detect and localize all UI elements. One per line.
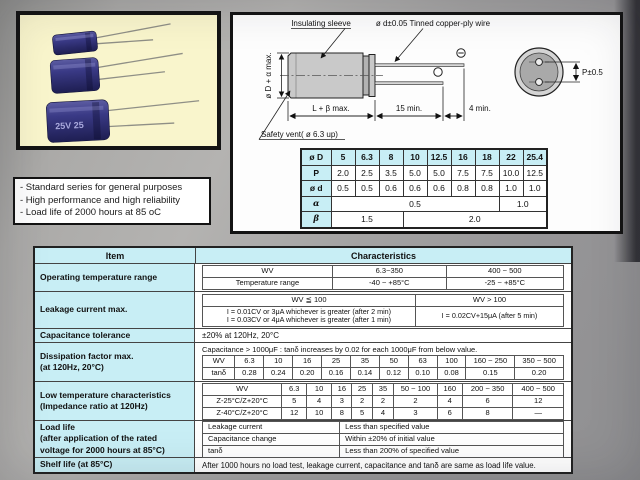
dim-label: P — [301, 165, 331, 181]
features-box: - Standard series for general purposes -… — [13, 177, 211, 225]
row-load-life: Load life (after application of the rate… — [35, 420, 571, 457]
subtable-cell: 8 — [462, 407, 513, 419]
subtable-cell: tanδ — [203, 445, 340, 457]
subtable-cell: Z-25°C/Z+20°C — [203, 395, 282, 407]
subtable-cell: 0.24 — [264, 367, 293, 379]
leakage-formula: I = 0.02CV+15μA (after 5 min) — [415, 306, 563, 326]
dim-header-cell: 16 — [451, 149, 475, 165]
subtable-cell: Capacitance change — [203, 433, 340, 445]
subtable-cell: 25 — [352, 383, 372, 395]
dim-cell: 1.5 — [331, 212, 403, 228]
item-label: (at 120Hz, 20°C) — [40, 362, 189, 373]
dim-cell: 3.5 — [379, 165, 403, 181]
subtable-cell: — — [513, 407, 564, 419]
lead-hole-top — [536, 59, 543, 66]
dim-cell: 1.0 — [523, 181, 547, 197]
cap-voltage-label: 25V 25 — [55, 120, 84, 131]
dim-header-cell: 6.3 — [355, 149, 379, 165]
dim-header-cell: 22 — [499, 149, 523, 165]
lead-top — [375, 64, 464, 67]
row-shelf-life: Shelf life (at 85°C) After 1000 hours no… — [35, 457, 571, 472]
subtable-cell: 16 — [332, 383, 352, 395]
dim-cell: 0.8 — [451, 181, 475, 197]
subtable-cell: -25 ~ +85°C — [446, 278, 563, 290]
dimensions-table: ø D 5 6.3 8 10 12.5 16 18 22 25.4 P 2.0 … — [300, 148, 548, 229]
subtable-cell: 2 — [352, 395, 372, 407]
dim-cell: 0.5 — [331, 196, 499, 212]
subtable-cell: 6 — [462, 395, 513, 407]
subtable-cell: Leakage current — [203, 421, 340, 433]
dim-cell: 0.5 — [331, 181, 355, 197]
subtable-cell: 0.15 — [466, 367, 515, 379]
label-diameter: ø D + α max. — [264, 52, 273, 98]
subtable-cell: 3 — [332, 395, 352, 407]
row-low-temperature: Low temperature characteristics (Impedan… — [35, 381, 571, 420]
subtable-cell: 50 ~ 100 — [394, 383, 437, 395]
subtable-cell: 0.20 — [515, 367, 564, 379]
subtable-cell: 10 — [264, 355, 293, 367]
dim-row-beta: β 1.5 2.0 — [301, 212, 547, 228]
label-body-length: L + β max. — [312, 104, 349, 113]
item-label: Capacitance tolerance — [40, 330, 189, 341]
subtable-cell: 35 — [350, 355, 379, 367]
subtable-cell: Temperature range — [203, 278, 333, 290]
dim-header-row: ø D 5 6.3 8 10 12.5 16 18 22 25.4 — [301, 149, 547, 165]
row-operating-temp: Operating temperature range WV 6.3~350 4… — [35, 263, 571, 291]
subtable-cell: Within ±20% of initial value — [340, 433, 564, 445]
dim-row-lead-dia: ø d 0.5 0.5 0.6 0.6 0.6 0.8 0.8 1.0 1.0 — [301, 181, 547, 197]
low-temp-subtable: WV 6.3 10 16 25 35 50 ~ 100 160 200 ~ 35… — [202, 383, 564, 420]
lead-bottom — [375, 82, 443, 85]
item-label: Shelf life (at 85°C) — [40, 459, 189, 470]
shelf-life-value: After 1000 hours no load test, leakage c… — [195, 461, 571, 470]
subtable-cell: 4 — [372, 407, 394, 419]
subtable-cell: 0.20 — [293, 367, 322, 379]
subtable-cell: 10 — [306, 407, 331, 419]
operating-temp-subtable: WV 6.3~350 400 ~ 500 Temperature range -… — [202, 265, 564, 290]
dim-cell: 0.5 — [355, 181, 379, 197]
dim-cell: 7.5 — [475, 165, 499, 181]
item-label: Leakage current max. — [40, 304, 189, 315]
subtable-cell: 2 — [372, 395, 394, 407]
subtable-cell: Less than specified value — [340, 421, 564, 433]
subtable-cell: 160 ~ 250 — [466, 355, 515, 367]
subtable-cell: 10 — [306, 383, 331, 395]
dim-cell: 0.6 — [379, 181, 403, 197]
item-label: (after application of the rated — [40, 433, 189, 444]
dim-row-alpha: α 0.5 1.0 — [301, 196, 547, 212]
subtable-cell: 6.3~350 — [332, 266, 446, 278]
item-label: Operating temperature range — [40, 272, 189, 283]
header-characteristics: Characteristics — [196, 248, 571, 263]
label-lead-length: 15 min. — [396, 104, 422, 113]
dim-header-cell: 10 — [403, 149, 427, 165]
subtable-cell: 5 — [282, 395, 307, 407]
dim-cell: 0.8 — [475, 181, 499, 197]
subtable-cell: -40 ~ +85°C — [332, 278, 446, 290]
dim-cell: 2.0 — [331, 165, 355, 181]
dim-header-cell: 8 — [379, 149, 403, 165]
dim-cell: 5.0 — [403, 165, 427, 181]
subtable-cell: WV — [203, 355, 235, 367]
row-leakage-current: Leakage current max. WV ≦ 100 WV > 100 I… — [35, 291, 571, 328]
capacitor-photo: 25V 25 — [16, 11, 221, 150]
subtable-cell: 6.3 — [282, 383, 307, 395]
subtable-cell: WV ≦ 100 — [203, 294, 416, 306]
subtable-cell: Less than 200% of specified value — [340, 445, 564, 457]
subtable-cell: 8 — [332, 407, 352, 419]
leakage-subtable: WV ≦ 100 WV > 100 I = 0.01CV or 3μA whic… — [202, 294, 564, 327]
dimension-diagram-box: Insulating sleeve ø d±0.05 Tinned copper… — [230, 12, 623, 234]
subtable-cell: 6.3 — [235, 355, 264, 367]
feature-item: - Load life of 2000 hours at 85 oC — [20, 207, 204, 220]
subtable-cell: 200 ~ 350 — [462, 383, 513, 395]
subtable-cell: WV > 100 — [415, 294, 563, 306]
lead-hole-bottom — [536, 79, 543, 86]
dim-header-cell: ø D — [301, 149, 331, 165]
subtable-cell: tanδ — [203, 367, 235, 379]
dim-header-cell: 5 — [331, 149, 355, 165]
row-capacitance-tolerance: Capacitance tolerance ±20% at 120Hz, 20°… — [35, 328, 571, 342]
subtable-cell: 0.28 — [235, 367, 264, 379]
subtable-cell: 4 — [306, 395, 331, 407]
dim-header-cell: 18 — [475, 149, 499, 165]
subtable-cell: 0.14 — [350, 367, 379, 379]
subtable-cell: 0.16 — [322, 367, 351, 379]
tolerance-value: ±20% at 120Hz, 20°C — [195, 331, 571, 340]
label-lead-pitch: P±0.5 — [582, 68, 603, 77]
subtable-cell: 63 — [408, 355, 437, 367]
table-header-row: Item Characteristics — [35, 248, 571, 263]
subtable-cell: 3 — [394, 407, 437, 419]
capacitor-end-view: P±0.5 — [515, 48, 603, 96]
dim-cell: 1.0 — [499, 196, 547, 212]
dim-label: β — [301, 212, 331, 228]
load-life-subtable: Leakage current Less than specified valu… — [202, 421, 564, 458]
dim-label: α — [301, 196, 331, 212]
subtable-cell: 100 — [437, 355, 466, 367]
subtable-cell: 0.08 — [437, 367, 466, 379]
subtable-cell: WV — [203, 383, 282, 395]
feature-item: - High performance and high reliability — [20, 195, 204, 208]
subtable-cell: 0.10 — [408, 367, 437, 379]
dim-cell: 0.6 — [427, 181, 451, 197]
datasheet-page: 25V 25 Insulating sleeve — [0, 0, 640, 480]
subtable-cell: 2 — [394, 395, 437, 407]
dim-header-cell: 12.5 — [427, 149, 451, 165]
item-label: voltage for 2000 hours at 85°C) — [40, 445, 189, 456]
feature-item: - Standard series for general purposes — [20, 182, 204, 195]
item-label: Low temperature characteristics — [40, 390, 189, 401]
subtable-cell: 25 — [322, 355, 351, 367]
dim-cell: 2.0 — [403, 212, 547, 228]
dim-cell: 12.5 — [523, 165, 547, 181]
item-label: Load life — [40, 422, 189, 433]
dim-cell: 0.6 — [403, 181, 427, 197]
subtable-cell: 12 — [513, 395, 564, 407]
characteristics-table: Item Characteristics Operating temperatu… — [33, 246, 573, 474]
subtable-cell: 160 — [437, 383, 462, 395]
subtable-cell: 35 — [372, 383, 394, 395]
item-label: (Impedance ratio at 120Hz) — [40, 401, 189, 412]
row-dissipation-factor: Dissipation factor max. (at 120Hz, 20°C)… — [35, 342, 571, 381]
subtable-cell: Z-40°C/Z+20°C — [203, 407, 282, 419]
subtable-cell: 400 ~ 500 — [513, 383, 564, 395]
dim-header-cell: 25.4 — [523, 149, 547, 165]
dim-cell: 7.5 — [451, 165, 475, 181]
dim-cell: 10.0 — [499, 165, 523, 181]
subtable-cell: 5 — [352, 407, 372, 419]
label-safety-vent: Safety vent( ø 6.3 up) — [261, 130, 338, 139]
label-tip-length: 4 min. — [469, 104, 491, 113]
dim-cell: 1.0 — [499, 181, 523, 197]
header-item: Item — [35, 248, 196, 263]
capacitor-drawing: Insulating sleeve ø d±0.05 Tinned copper… — [233, 15, 620, 148]
dim-row-pitch: P 2.0 2.5 3.5 5.0 5.0 7.5 7.5 10.0 12.5 — [301, 165, 547, 181]
subtable-cell: 16 — [293, 355, 322, 367]
subtable-cell: WV — [203, 266, 333, 278]
capacitor-body-drawing — [280, 49, 465, 98]
leakage-formula: I = 0.03CV or 4μA whichever is greater (… — [205, 316, 413, 324]
subtable-cell: 6 — [437, 407, 462, 419]
label-tinned-wire: ø d±0.05 Tinned copper-ply wire — [376, 19, 491, 28]
dim-cell: 5.0 — [427, 165, 451, 181]
subtable-cell: 4 — [437, 395, 462, 407]
subtable-cell: 12 — [282, 407, 307, 419]
subtable-cell: 0.12 — [379, 367, 408, 379]
subtable-cell: 50 — [379, 355, 408, 367]
subtable-cell: 400 ~ 500 — [446, 266, 563, 278]
plus-polarity-icon — [434, 68, 442, 76]
dissipation-subtable: WV 6.3 10 16 25 35 50 63 100 160 ~ 250 3… — [202, 355, 564, 380]
dissipation-note: Capacitance > 1000μF : tanδ increases by… — [195, 345, 571, 354]
label-insulating-sleeve: Insulating sleeve — [291, 19, 351, 28]
subtable-cell: 350 ~ 500 — [515, 355, 564, 367]
capacitor-photo-image: 25V 25 — [20, 15, 217, 146]
item-label: Dissipation factor max. — [40, 351, 189, 362]
dim-cell: 2.5 — [355, 165, 379, 181]
dim-label: ø d — [301, 181, 331, 197]
